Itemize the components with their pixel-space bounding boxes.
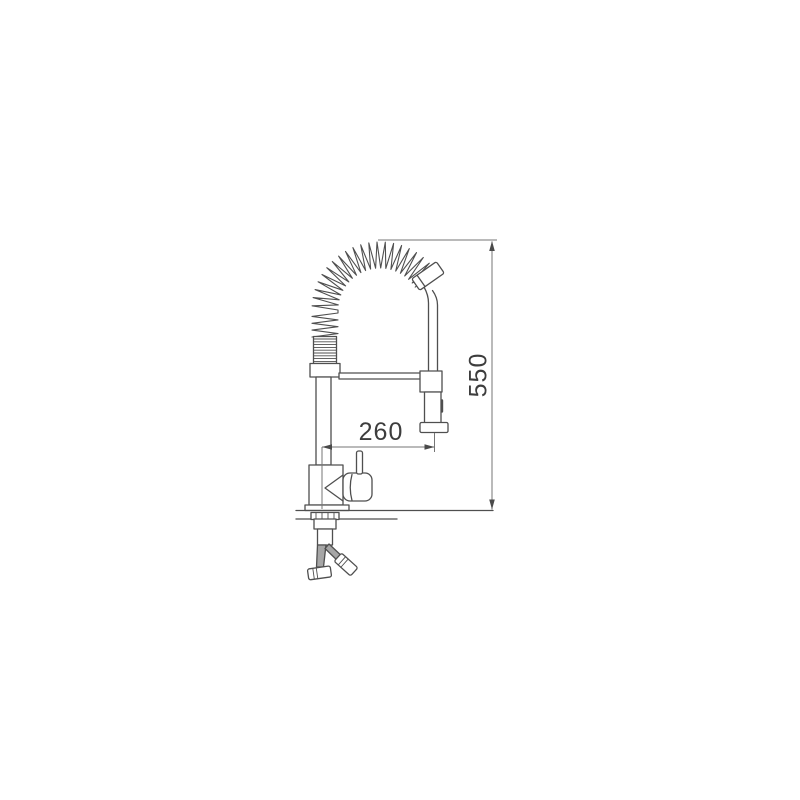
hose-fitting-right-body [334,553,358,576]
faucet-body [309,465,343,505]
sprayer-body [425,392,442,423]
handle-lever [357,451,363,474]
spray-head [412,262,445,291]
spray-tube [424,287,438,372]
sprayer-nozzle [420,423,448,433]
spray-holder [420,371,442,392]
spring-collar [310,364,340,378]
page-background: 260 550 [0,0,800,800]
arrow-down-icon [489,500,495,510]
hose-fitting-left [307,566,331,580]
dimension-label-reach: 260 [359,418,404,446]
handle-grip [343,473,372,501]
hose-fitting-right [334,553,358,576]
support-bar [339,373,422,379]
mounting-nut [314,519,336,529]
faucet-drawing [296,242,493,580]
mounting-shank [318,529,333,545]
base-flange [305,505,349,511]
hose-fitting-left-body [307,566,331,580]
spring-coil [312,242,435,337]
arrow-right-icon [425,444,435,450]
dimension-label-height: 550 [465,353,493,398]
riser-pipe [316,377,331,465]
arrow-up-icon [489,241,495,251]
faucet-technical-drawing: 260 550 [0,0,800,800]
spray-head-body [412,262,445,291]
